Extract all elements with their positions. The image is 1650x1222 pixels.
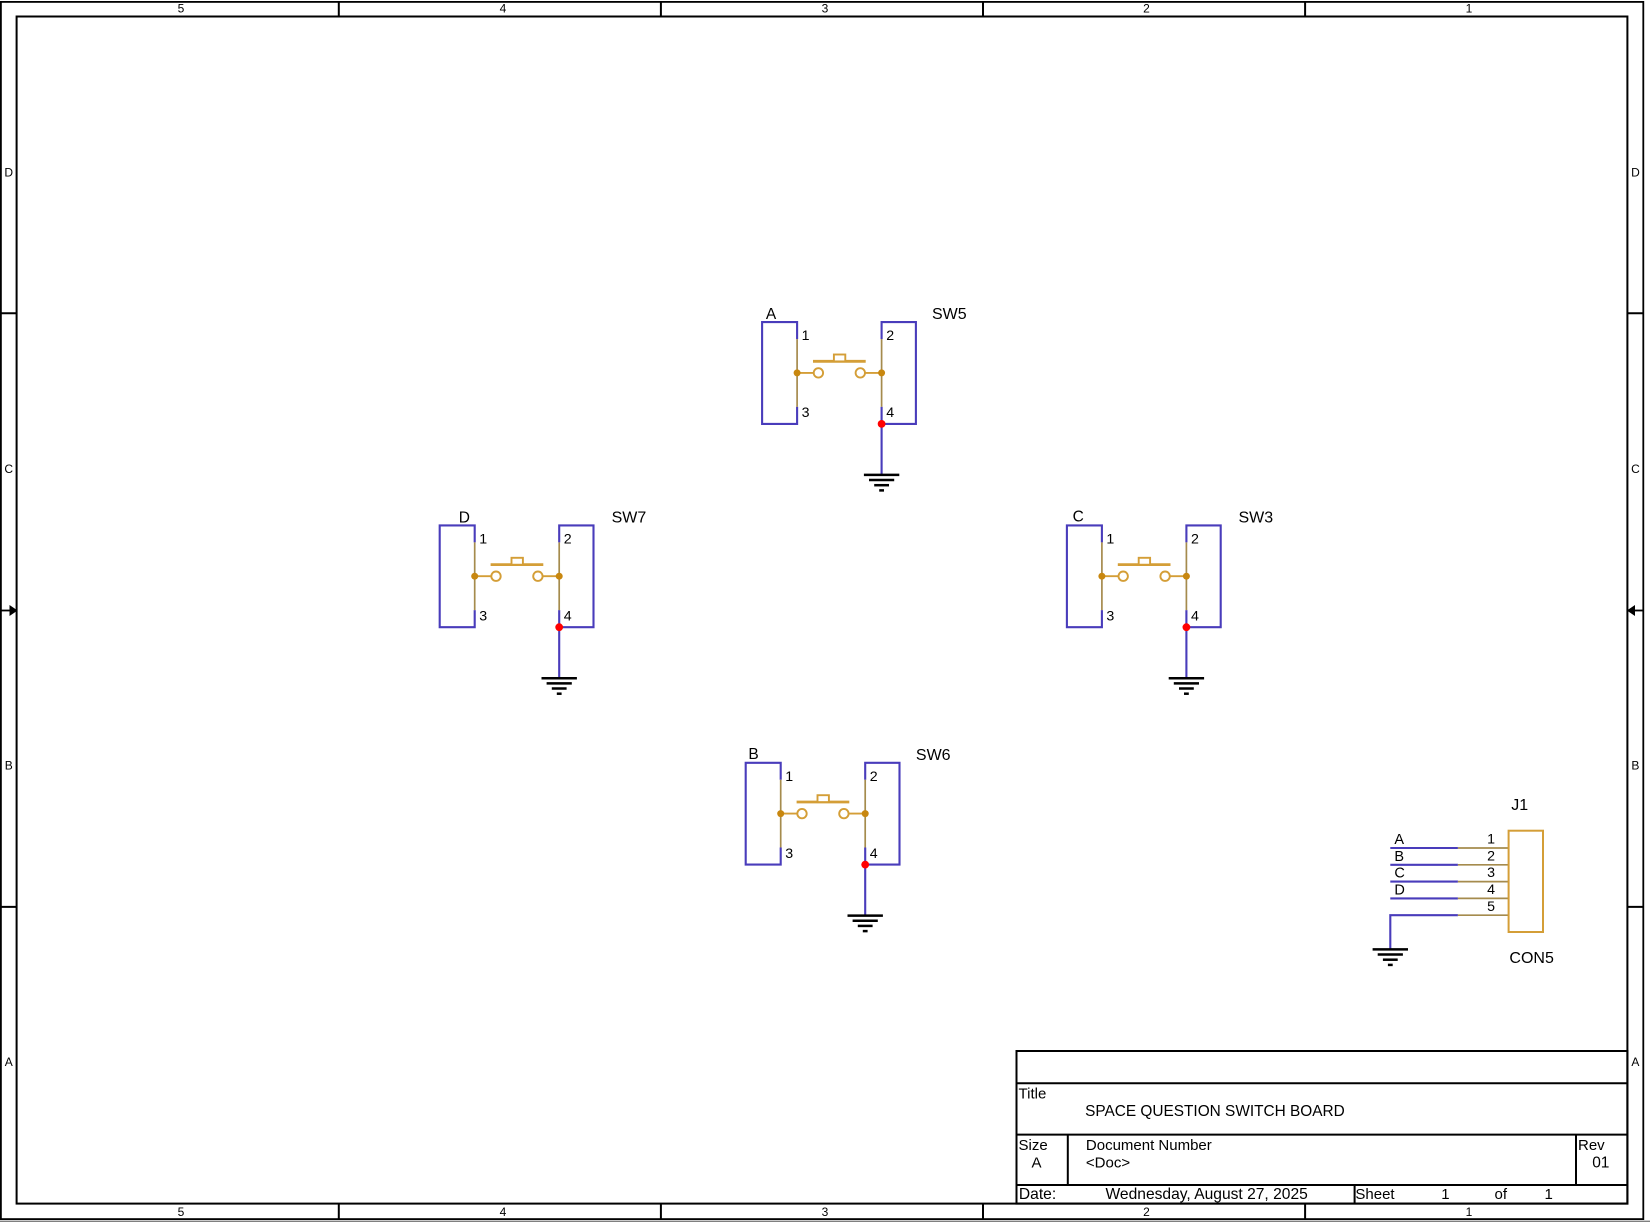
svg-text:SW3: SW3: [1239, 509, 1274, 526]
svg-text:3: 3: [822, 1205, 829, 1219]
svg-text:SW5: SW5: [932, 306, 967, 323]
svg-text:4: 4: [500, 1205, 507, 1219]
svg-text:A: A: [1031, 1155, 1041, 1172]
svg-text:2: 2: [1143, 2, 1150, 16]
svg-text:B: B: [1394, 849, 1404, 865]
svg-text:01: 01: [1592, 1155, 1609, 1172]
svg-text:B: B: [748, 746, 758, 763]
svg-text:3: 3: [822, 2, 829, 16]
svg-text:Wednesday, August 27, 2025: Wednesday, August 27, 2025: [1106, 1186, 1309, 1203]
svg-text:5: 5: [178, 2, 185, 16]
svg-text:C: C: [1073, 509, 1084, 526]
svg-text:3: 3: [1487, 865, 1495, 881]
svg-text:D: D: [1394, 882, 1404, 898]
svg-text:Size: Size: [1019, 1137, 1048, 1154]
svg-text:Title: Title: [1019, 1086, 1047, 1103]
svg-text:B: B: [1631, 759, 1639, 773]
svg-text:C: C: [1394, 866, 1404, 882]
svg-text:Sheet: Sheet: [1355, 1186, 1395, 1203]
svg-text:D: D: [4, 166, 13, 180]
svg-text:1: 1: [1441, 1186, 1449, 1203]
svg-text:D: D: [459, 509, 470, 526]
svg-text:J1: J1: [1511, 797, 1528, 814]
svg-text:1: 1: [1487, 832, 1495, 848]
svg-text:1: 1: [1545, 1186, 1553, 1203]
svg-text:D: D: [1631, 166, 1640, 180]
svg-text:A: A: [1631, 1055, 1639, 1069]
svg-text:5: 5: [1487, 899, 1495, 915]
svg-text:Date:: Date:: [1019, 1186, 1056, 1203]
svg-text:4: 4: [500, 2, 507, 16]
svg-text:2: 2: [1143, 1205, 1150, 1219]
svg-text:A: A: [1394, 832, 1404, 848]
svg-text:5: 5: [178, 1205, 185, 1219]
svg-text:Document Number: Document Number: [1086, 1137, 1212, 1154]
svg-text:<Doc>: <Doc>: [1086, 1155, 1130, 1172]
svg-text:B: B: [5, 759, 13, 773]
svg-text:1: 1: [1466, 1205, 1473, 1219]
svg-text:1: 1: [1466, 2, 1473, 16]
svg-text:4: 4: [1487, 882, 1495, 898]
svg-text:SPACE QUESTION SWITCH BOARD: SPACE QUESTION SWITCH BOARD: [1085, 1103, 1345, 1120]
svg-text:SW7: SW7: [612, 509, 647, 526]
svg-text:Rev: Rev: [1578, 1137, 1605, 1154]
svg-text:SW6: SW6: [916, 747, 951, 764]
svg-text:A: A: [766, 306, 777, 323]
svg-text:2: 2: [1487, 848, 1495, 864]
svg-text:C: C: [4, 462, 13, 476]
svg-text:C: C: [1631, 462, 1640, 476]
svg-text:CON5: CON5: [1509, 950, 1554, 967]
svg-text:A: A: [5, 1055, 13, 1069]
svg-text:of: of: [1495, 1186, 1508, 1203]
